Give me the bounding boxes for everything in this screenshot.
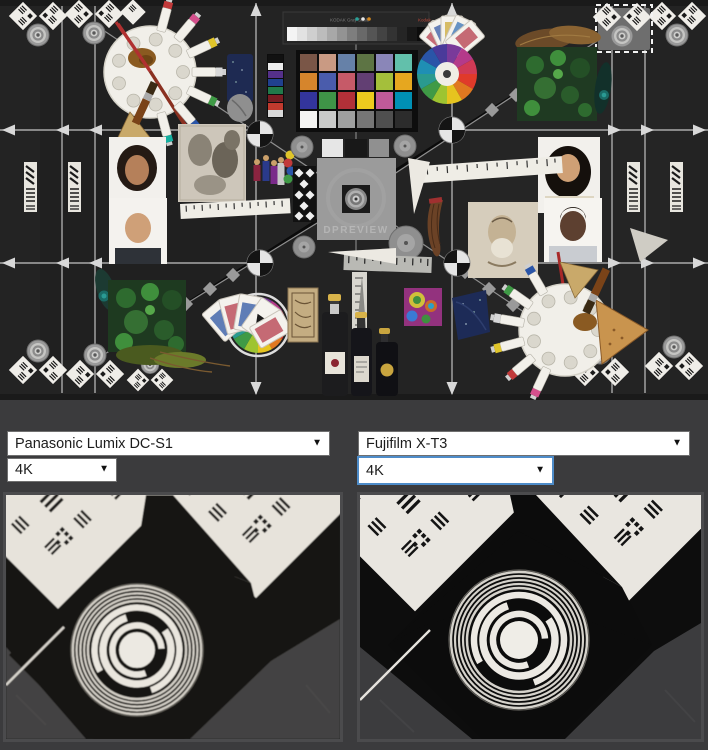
studio-test-scene-image[interactable]: KODAK Gray Scale Kodak <box>0 0 708 400</box>
bw-pattern-strip <box>293 166 316 222</box>
engraving-print <box>178 124 246 202</box>
resolution-select-left[interactable]: 4K ▼ <box>7 458 117 482</box>
camera-select-left[interactable]: Panasonic Lumix DC-S1 ▼ <box>7 431 330 456</box>
svg-text:DPREVIEW: DPREVIEW <box>323 225 388 236</box>
resolution-select-right[interactable]: 4K ▼ <box>357 456 554 485</box>
tarot-card <box>288 288 318 342</box>
color-resolution-strip <box>267 54 284 118</box>
fabric-swatch-top <box>227 54 253 122</box>
portrait-man-left <box>109 198 167 264</box>
camera-select-right[interactable]: Fujifilm X-T3 ▼ <box>358 431 690 456</box>
spiral-circles-card <box>404 288 442 326</box>
grayscale-step-chart: KODAK Gray Scale Kodak <box>283 12 432 44</box>
color-checker-chart <box>296 50 418 132</box>
portrait-man-right <box>544 198 602 262</box>
fabric-swatch-bottom <box>452 290 490 340</box>
color-wheel-top <box>417 44 477 104</box>
comparison-crop-left <box>3 492 343 742</box>
comparison-crop-right <box>357 492 704 742</box>
svg-text:Kodak: Kodak <box>418 18 432 23</box>
crop-selection-marquee[interactable] <box>593 3 652 52</box>
plant-box-top-right <box>514 23 615 121</box>
